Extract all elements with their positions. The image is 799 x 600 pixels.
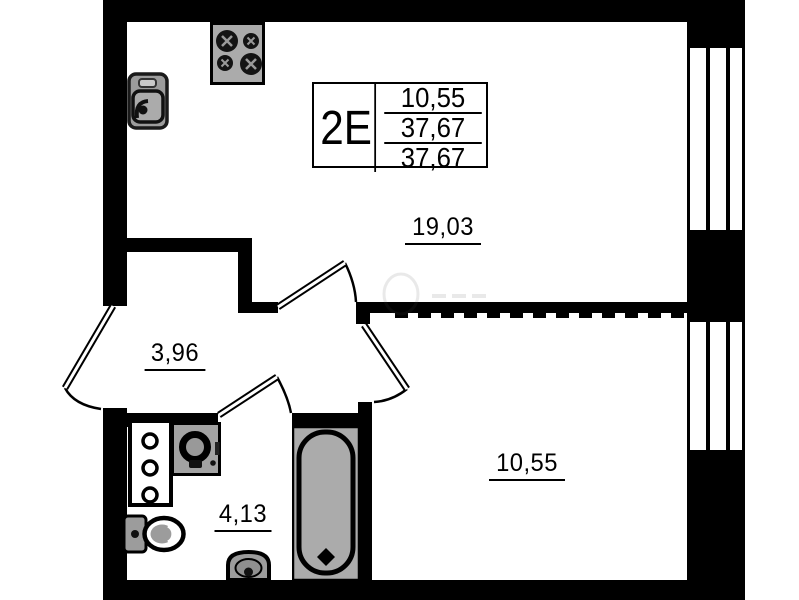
unit-area-row: 37,67 [384, 112, 482, 142]
unit-info-table: 2E 10,55 37,67 37,67 [312, 82, 488, 168]
unit-area-row: 10,55 [384, 84, 482, 112]
washing-machine-icon [171, 422, 221, 476]
room-area-living: 19,03 [405, 213, 481, 245]
bathroom-cabinet-icon [128, 419, 173, 507]
bathtub-icon [292, 426, 360, 581]
washbasin-icon [225, 549, 272, 582]
bathroom-door-icon [219, 377, 291, 415]
room-area-bedroom: 10,55 [489, 449, 565, 481]
unit-area-row: 37,67 [384, 142, 482, 172]
entrance-door-icon [65, 306, 113, 409]
unit-label: 2E [318, 84, 376, 172]
living-room-door-icon [278, 263, 356, 307]
room-area-hall: 3,96 [145, 339, 206, 371]
room-area-bath: 4,13 [215, 500, 272, 532]
bedroom-door-icon [364, 325, 407, 402]
floor-plan: 2E 10,55 37,67 37,67 19,03 3,96 4,13 10,… [0, 0, 799, 600]
toilet-icon [122, 513, 186, 555]
kitchen-sink-icon [127, 72, 169, 130]
stove-icon [210, 22, 265, 85]
watermark [384, 274, 486, 314]
